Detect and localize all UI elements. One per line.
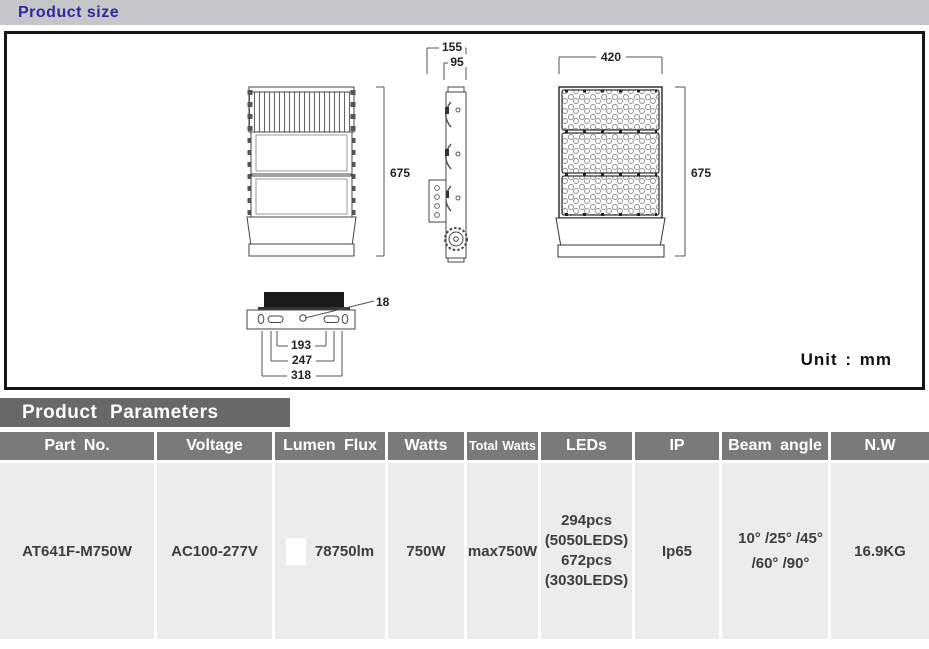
product-parameters-header-bar: Product Parameters: [0, 398, 290, 427]
col-header-voltage: Voltage: [157, 432, 275, 463]
cell-voltage: AC100-277V: [157, 463, 275, 642]
cell-net-weight: 16.9KG: [831, 463, 929, 642]
back-view-drawing: [247, 87, 384, 256]
dim-mount-hole: 18: [376, 295, 390, 309]
cell-watts: 750W: [388, 463, 467, 642]
unit-label: Unit : mm: [801, 350, 892, 370]
product-size-title: Product size: [18, 4, 119, 22]
dim-front-width: 420: [601, 50, 621, 64]
col-header-part-no: Part No.: [0, 432, 157, 463]
cell-total-watts: max750W: [467, 463, 541, 642]
product-size-header-bar: Product size: [0, 0, 929, 25]
cell-beam-angle: 10° /25° /45° /60° /90°: [722, 463, 831, 642]
cell-ip: Ip65: [635, 463, 722, 642]
col-header-lumen-flux: Lumen Flux: [275, 432, 388, 463]
col-header-total-watts: Total Watts: [467, 432, 541, 463]
product-parameters-title: Product Parameters: [22, 402, 219, 424]
dim-span-outer: 318: [291, 368, 311, 382]
col-header-nw: N.W: [831, 432, 929, 463]
lumen-flux-value: 78750lm: [315, 543, 374, 560]
dim-span-mid: 247: [292, 353, 312, 367]
spec-table: Part No. Voltage Lumen Flux Watts Total …: [0, 432, 929, 642]
col-header-beam-angle: Beam angle: [722, 432, 831, 463]
lumen-flux-swatch: [286, 538, 306, 565]
spec-table-row: AT641F-M750W AC100-277V 78750lm 750W max…: [0, 463, 929, 642]
col-header-leds: LEDs: [541, 432, 635, 463]
dim-front-height: 675: [691, 166, 711, 180]
cell-leds: 294pcs (5050LEDS) 672pcs (3030LEDS): [541, 463, 635, 642]
product-drawing-panel: 675: [4, 31, 925, 390]
front-view-drawing: [556, 49, 685, 257]
technical-drawing: 675: [7, 34, 922, 387]
side-view-drawing: [427, 38, 467, 262]
col-header-watts: Watts: [388, 432, 467, 463]
dim-side-depth-total: 155: [442, 40, 462, 54]
dim-span-inner: 193: [291, 338, 311, 352]
cell-part-no: AT641F-M750W: [0, 463, 157, 642]
spec-table-header-row: Part No. Voltage Lumen Flux Watts Total …: [0, 432, 929, 463]
col-header-ip: IP: [635, 432, 722, 463]
dim-side-depth-body: 95: [450, 55, 464, 69]
cell-lumen-flux: 78750lm: [275, 463, 388, 642]
dim-back-height: 675: [390, 166, 410, 180]
